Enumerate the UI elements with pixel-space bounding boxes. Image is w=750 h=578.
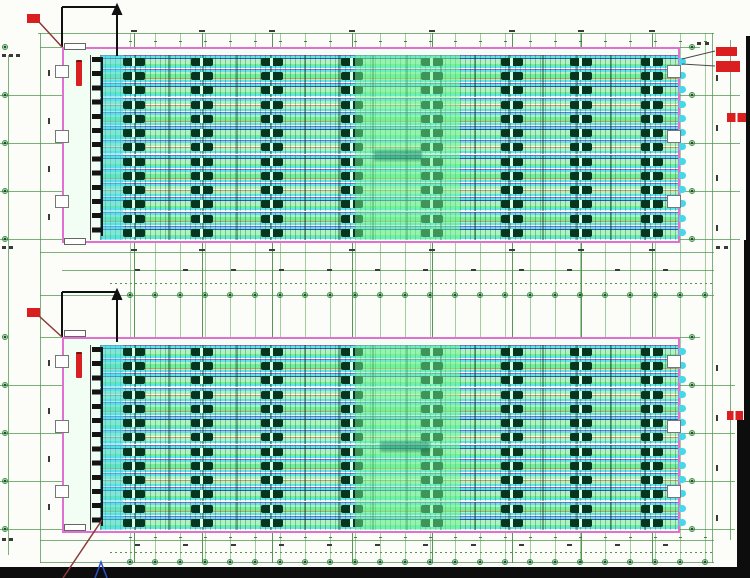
right-annotation-leader [682, 51, 715, 59]
section-cut-arrowhead [112, 289, 122, 300]
section-cut-arrowhead [112, 4, 122, 15]
annotation-lines-layer [0, 0, 750, 578]
right-annotation-leader [682, 64, 715, 66]
red-annotation-leader [39, 22, 62, 47]
blue-north-mark [95, 562, 107, 578]
red-annotation-leader [39, 316, 62, 337]
bottom-left-leader-line [63, 520, 102, 578]
